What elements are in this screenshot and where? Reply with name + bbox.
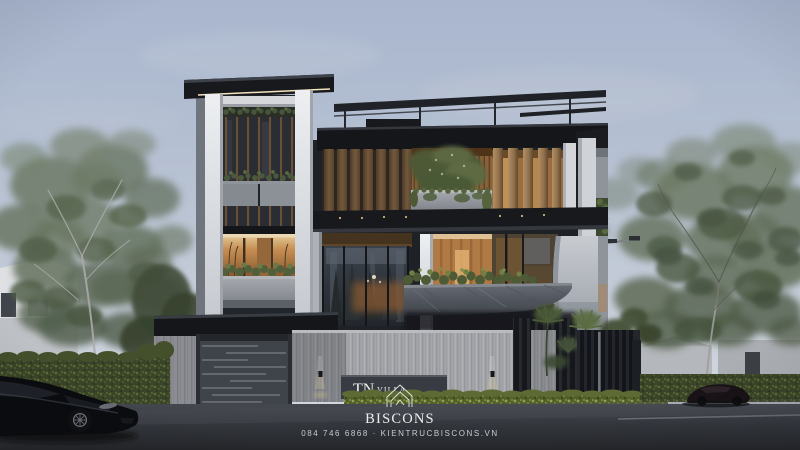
svg-text:BISCONS: BISCONS	[365, 411, 435, 427]
svg-text:084 746 6868 · KIENTRUCBISCONS: 084 746 6868 · KIENTRUCBISCONS.VN	[301, 429, 498, 438]
